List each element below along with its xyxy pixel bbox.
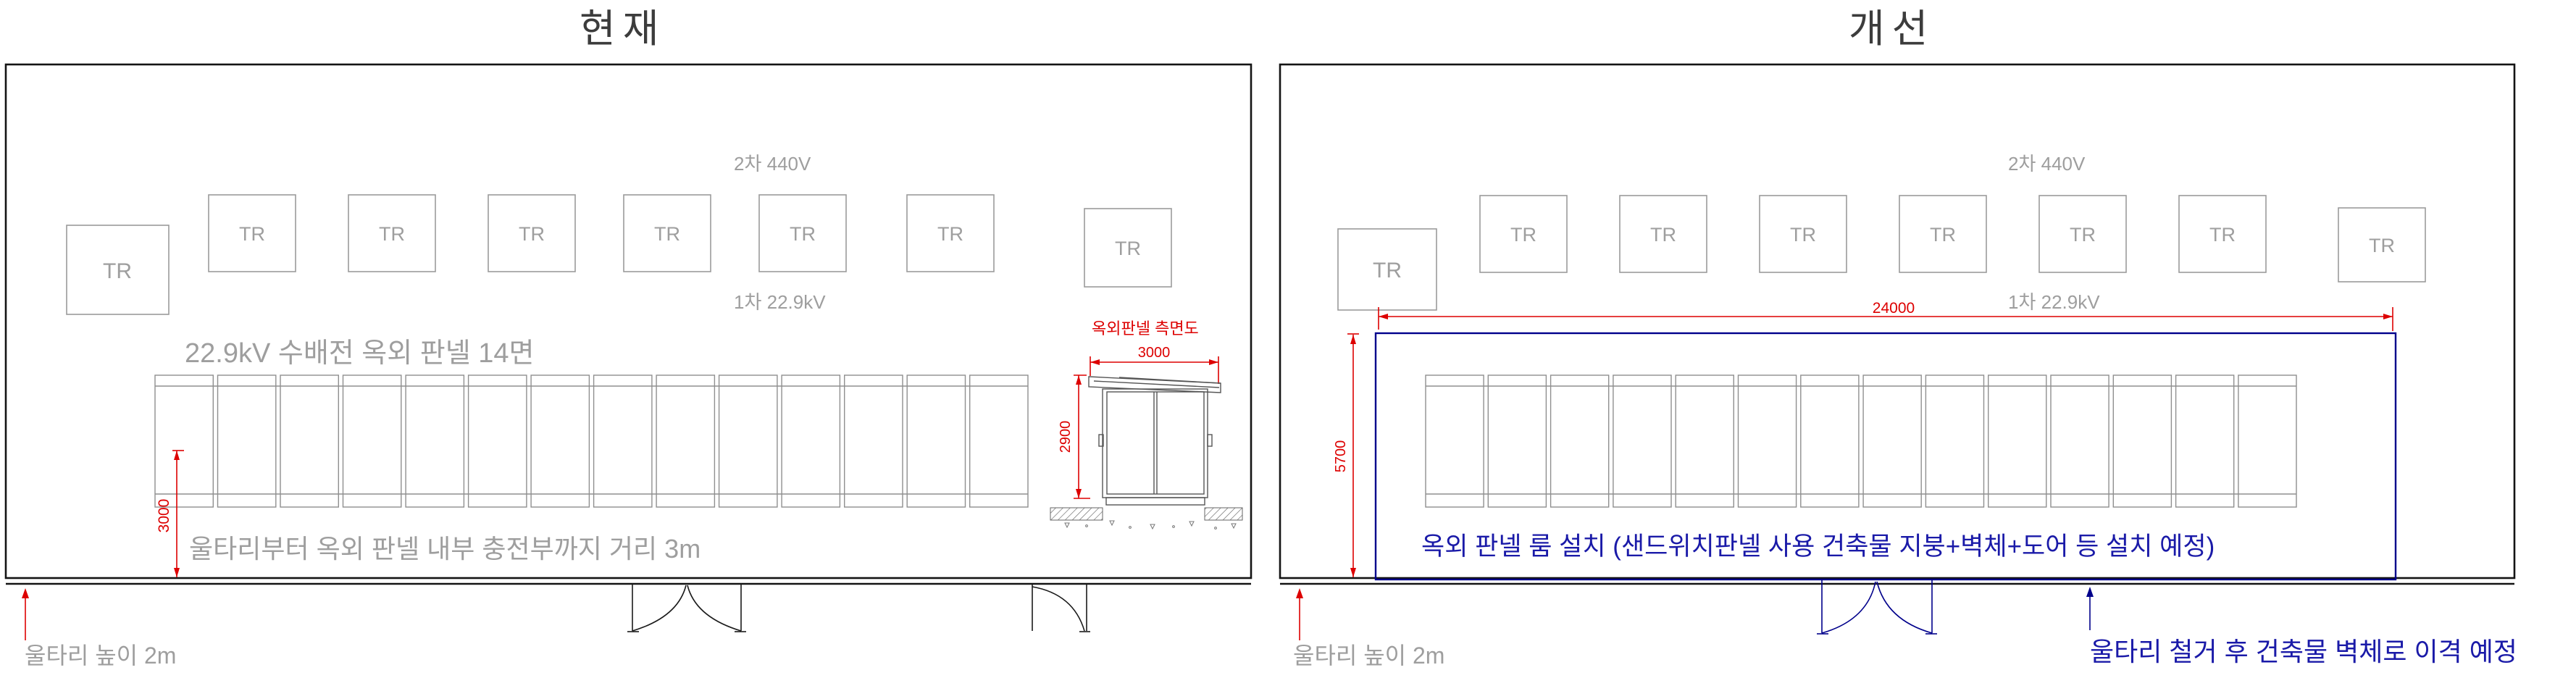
left-title: 현재 xyxy=(580,7,666,51)
panel-cell xyxy=(343,375,401,507)
panel-cell xyxy=(2238,375,2296,507)
panel-cell xyxy=(1676,375,1734,507)
primary-voltage-label: 1차 22.9kV xyxy=(734,291,826,313)
panel-cell xyxy=(1613,375,1671,507)
transformer-box: TR xyxy=(67,225,169,314)
room-depth-dimension: 5700 xyxy=(1333,334,1359,577)
ground-hatch xyxy=(1050,508,1103,520)
panel-cell xyxy=(845,375,903,507)
tr-label: TR xyxy=(1115,238,1141,259)
panel-cell xyxy=(782,375,840,507)
transformer-box: TR xyxy=(1899,196,1986,272)
side-view-height-value: 2900 xyxy=(1058,421,1074,453)
tr-label: TR xyxy=(654,223,680,245)
fence-height-callout: 울타리 높이 2m xyxy=(1293,588,1444,669)
tr-label: TR xyxy=(1650,224,1676,246)
fence-height-callout: 울타리 높이 2m xyxy=(22,588,176,669)
cad-comparison-drawing: 현재 TR TR TR TR TR TR TR xyxy=(0,0,2576,678)
tr-label: TR xyxy=(1373,259,1402,282)
panel-cell xyxy=(155,375,213,507)
room-width-value: 24000 xyxy=(1873,300,1915,317)
tr-label: TR xyxy=(239,223,265,245)
panel-cell xyxy=(1426,375,1484,507)
transformer-box: TR xyxy=(624,195,711,272)
side-view-width-value: 3000 xyxy=(1138,345,1171,361)
ground-hatch xyxy=(1205,508,1242,520)
panel-cell xyxy=(594,375,652,507)
side-view-body xyxy=(1103,389,1208,498)
transformer-box: TR xyxy=(1338,229,1437,310)
right-title: 개선 xyxy=(1849,7,1935,51)
panel-cell xyxy=(907,375,965,507)
transformer-box: TR xyxy=(907,195,994,272)
tr-label: TR xyxy=(519,223,545,245)
panel-cell xyxy=(970,375,1028,507)
outdoor-panel-side-view: 옥외판넬 측면도 3000 xyxy=(1050,319,1242,529)
panel-cell xyxy=(1925,375,1983,507)
panel-cell xyxy=(1863,375,1921,507)
room-plan-note: 옥외 판넬 룸 설치 (샌드위치판넬 사용 건축물 지붕+벽체+도어 등 설치 … xyxy=(1421,532,2215,561)
transformer-box: TR xyxy=(2179,196,2266,272)
panel-cell xyxy=(1989,375,2046,507)
right-panel-row xyxy=(1426,375,2296,507)
panel-cell xyxy=(531,375,589,507)
transformer-box: TR xyxy=(209,195,296,272)
fence-removal-note: 울타리 철거 후 건축물 벽체로 이격 예정 xyxy=(2090,637,2517,666)
room-width-dimension: 24000 xyxy=(1379,300,2393,331)
panel-row-title: 22.9kV 수배전 옥외 판넬 14면 xyxy=(185,338,534,369)
ground-marks xyxy=(1065,521,1236,529)
panel-cell xyxy=(1488,375,1546,507)
tr-label: TR xyxy=(2070,224,2096,246)
panel-cell xyxy=(2113,375,2171,507)
right-site-boundary xyxy=(1280,64,2514,578)
transformer-box: TR xyxy=(1480,196,1567,272)
right-drawing: 개선 TR TR TR TR TR TR TR xyxy=(1280,7,2517,669)
panel-cell xyxy=(2176,375,2234,507)
fence-height-note: 울타리 높이 2m xyxy=(1293,643,1444,669)
tr-label: TR xyxy=(103,259,132,283)
clearance-dimension: 3000 xyxy=(156,451,184,577)
fence-removal-callout: 울타리 철거 후 건축물 벽체로 이격 예정 xyxy=(2086,587,2517,666)
tr-label: TR xyxy=(1790,224,1816,246)
secondary-voltage-label: 2차 440V xyxy=(2008,153,2086,175)
clearance-note: 울타리부터 옥외 판넬 내부 충전부까지 거리 3m xyxy=(189,534,701,564)
transformer-box: TR xyxy=(1760,196,1847,272)
transformer-box: TR xyxy=(759,195,846,272)
panel-cell xyxy=(1739,375,1797,507)
panel-cell xyxy=(218,375,276,507)
panel-cell xyxy=(719,375,777,507)
panel-cell xyxy=(1551,375,1609,507)
primary-voltage-label: 1차 22.9kV xyxy=(2008,291,2100,313)
panel-cell xyxy=(469,375,527,507)
tr-label: TR xyxy=(1930,224,1956,246)
tr-label: TR xyxy=(1510,224,1536,246)
door-handle xyxy=(1208,435,1212,446)
tr-label: TR xyxy=(2369,235,2395,256)
transformer-box: TR xyxy=(2039,196,2126,272)
clearance-dim-value: 3000 xyxy=(156,499,172,533)
panel-cell xyxy=(406,375,464,507)
planned-door xyxy=(1817,579,1937,634)
single-gate xyxy=(1032,584,1090,632)
panel-cell xyxy=(1801,375,1859,507)
tr-label: TR xyxy=(790,223,816,245)
double-gate xyxy=(627,584,746,632)
secondary-voltage-label: 2차 440V xyxy=(734,153,811,175)
tr-label: TR xyxy=(2209,224,2236,246)
panel-cell xyxy=(656,375,714,507)
tr-label: TR xyxy=(379,223,405,245)
transformer-box: TR xyxy=(348,195,435,272)
transformer-box: TR xyxy=(1084,209,1171,287)
side-view-title: 옥외판넬 측면도 xyxy=(1092,319,1199,338)
left-panel-row xyxy=(155,375,1028,507)
transformer-box: TR xyxy=(488,195,575,272)
fence-height-note: 울타리 높이 2m xyxy=(25,643,176,669)
tr-label: TR xyxy=(937,223,963,245)
panel-cell xyxy=(2051,375,2109,507)
room-depth-value: 5700 xyxy=(1333,440,1349,473)
transformer-box: TR xyxy=(2338,208,2425,282)
left-drawing: 현재 TR TR TR TR TR TR TR xyxy=(6,7,1251,669)
left-site-boundary xyxy=(6,64,1251,578)
panel-cell xyxy=(280,375,338,507)
transformer-box: TR xyxy=(1620,196,1707,272)
side-view-base xyxy=(1106,498,1205,505)
